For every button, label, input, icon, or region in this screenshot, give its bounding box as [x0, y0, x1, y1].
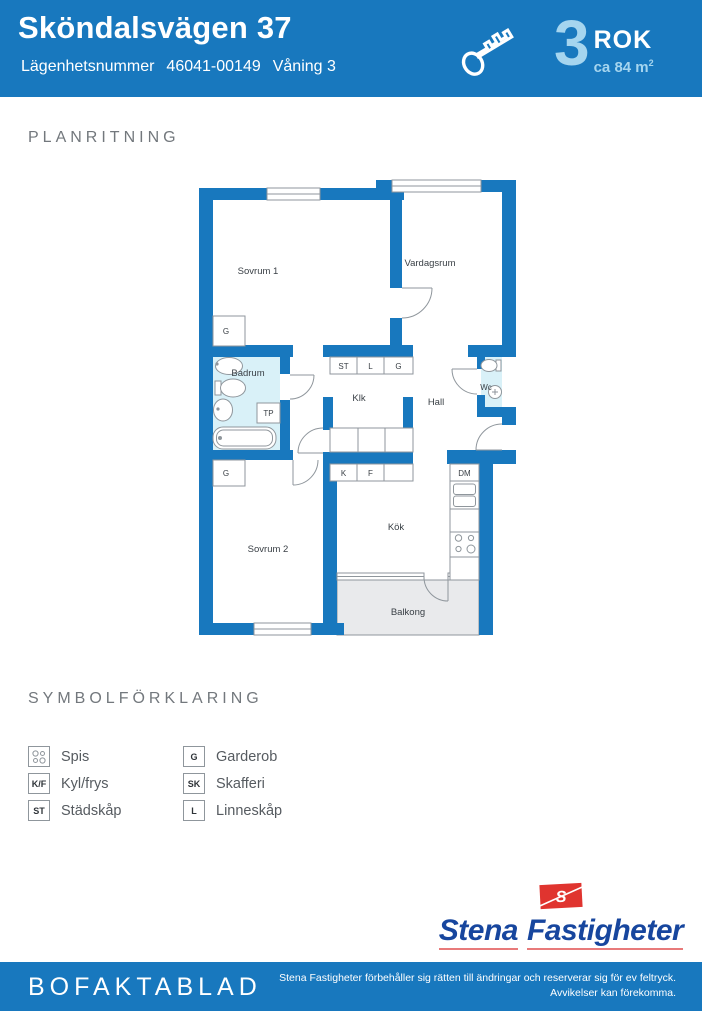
sk-symbol: SK [183, 773, 205, 794]
door-wc [452, 369, 477, 394]
apartment-number-label: Lägenhetsnummer [21, 58, 154, 76]
kitchen-counter [450, 464, 479, 580]
label-sovrum2: Sovrum 2 [248, 544, 289, 555]
symbolforklaring-heading: SYMBOLFÖRKLARING [28, 690, 263, 708]
footer-bar: BOFAKTABLAD Stena Fastigheter förbehålle… [0, 962, 702, 1011]
st-symbol: ST [28, 800, 50, 821]
label-balkong: Balkong [391, 607, 425, 618]
legend-label-spis: Spis [61, 749, 149, 765]
brand-wordmark: StenaFastigheter [439, 914, 683, 948]
label-sovrum1: Sovrum 1 [238, 266, 279, 277]
apartment-info: Lägenhetsnummer 46041-00149 Våning 3 [21, 58, 336, 76]
bathtub-icon [213, 427, 276, 449]
legend-item-stadskap: ST Städskåp [28, 800, 149, 821]
label-klk: Klk [352, 393, 365, 404]
door-entrance [476, 424, 502, 450]
marker-l: L [368, 362, 373, 371]
label-hall: Hall [428, 397, 444, 408]
stove-legend-icon [28, 746, 50, 767]
closet-blank [384, 464, 413, 481]
marker-k: K [341, 469, 347, 478]
window-sovrum1 [267, 188, 320, 200]
toilet-icon [215, 379, 246, 397]
label-badrum: Badrum [231, 368, 264, 379]
legend-item-kylfrys: K/F Kyl/frys [28, 773, 149, 794]
legend-label-kylfrys: Kyl/frys [61, 776, 149, 792]
marker-g-hall: G [395, 362, 401, 371]
label-vardagsrum: Vardagsrum [404, 258, 455, 269]
floor-plan: Sovrum 1 Vardagsrum Badrum Klk Hall Wc S… [196, 178, 526, 643]
legend-item-skafferi: SK Skafferi [183, 773, 304, 794]
flag-letter: S [555, 889, 567, 907]
disclaimer: Stena Fastigheter förbehåller sig rätten… [279, 971, 676, 1001]
header-bar: Sköndalsvägen 37 Lägenhetsnummer 46041-0… [0, 0, 702, 97]
label-kok: Kök [388, 522, 405, 533]
door-sovrum1 [402, 288, 432, 318]
planritning-heading: PLANRITNING [28, 129, 180, 147]
disclaimer-line-1: Stena Fastigheter förbehåller sig rätten… [279, 971, 676, 986]
key-icon [449, 12, 525, 80]
window-vardagsrum [392, 180, 481, 192]
apartment-number-value: 46041-00149 [166, 58, 260, 76]
disclaimer-line-2: Avvikelser kan förekomma. [279, 986, 676, 1001]
marker-g-sovrum2: G [223, 469, 229, 478]
marker-st: ST [338, 362, 348, 371]
area-superscript: 2 [649, 58, 654, 68]
legend-label-garderob: Garderob [216, 749, 304, 765]
kf-symbol: K/F [28, 773, 50, 794]
legend-label-stadskap: Städskåp [61, 803, 149, 819]
brand-word-fastigheter: Fastigheter [527, 914, 683, 950]
round-basin-icon [214, 399, 233, 421]
symbol-legend: Spis K/F Kyl/frys ST Städskåp G Garderob… [28, 746, 304, 821]
legend-label-skafferi: Skafferi [216, 776, 304, 792]
bofaktablad-page: Sköndalsvägen 37 Lägenhetsnummer 46041-0… [0, 0, 702, 1011]
floor-label: Våning 3 [273, 58, 336, 76]
legend-label-linneskap: Linneskåp [216, 803, 304, 819]
legend-item-spis: Spis [28, 746, 149, 767]
marker-tp: TP [263, 409, 273, 418]
legend-item-garderob: G Garderob [183, 746, 304, 767]
closet-klk-units [330, 428, 413, 452]
window-sovrum2 [254, 623, 311, 635]
l-symbol: L [183, 800, 205, 821]
address-title: Sköndalsvägen 37 [18, 10, 292, 46]
marker-dm: DM [458, 469, 471, 478]
door-klk [298, 428, 323, 453]
bofaktablad-title: BOFAKTABLAD [28, 973, 262, 1002]
room-count: 3 [554, 8, 590, 78]
label-wc: Wc [480, 383, 492, 392]
door-sovrum2 [293, 460, 318, 485]
stena-flag-icon: S [537, 880, 585, 912]
marker-g-sovrum1: G [223, 327, 229, 336]
room-size-block: 3 ROK ca 84 m2 [554, 8, 654, 78]
stena-fastigheter-logo: S StenaFastigheter [430, 880, 692, 948]
area-value: ca 84 m2 [594, 58, 654, 76]
marker-f: F [368, 469, 373, 478]
legend-item-linneskap: L Linneskåp [183, 800, 304, 821]
room-unit: ROK [594, 28, 654, 53]
g-symbol: G [183, 746, 205, 767]
door-badrum [290, 375, 314, 399]
brand-word-stena: Stena [439, 914, 518, 950]
wc-toilet-icon [481, 360, 501, 372]
